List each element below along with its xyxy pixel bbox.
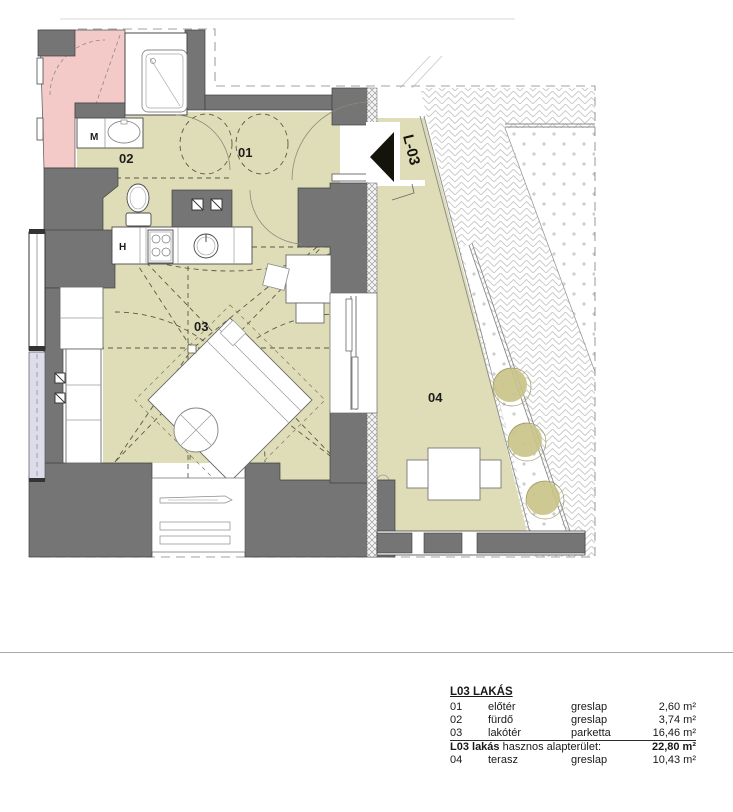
sheet-divider-line: [0, 652, 733, 653]
total-label-bold: L03 lakás: [450, 741, 500, 753]
glass-door: [330, 293, 377, 413]
room-number: 01: [450, 701, 488, 714]
schedule-row-04: 04 terasz greslap 10,43 m²: [450, 754, 696, 767]
wall-bottom-left: [29, 463, 152, 557]
schedule-row-03: 03 lakótér parketta 16,46 m²: [450, 727, 696, 741]
room-material: greslap: [571, 754, 650, 767]
washbasin: [77, 118, 143, 148]
round-table: [174, 408, 218, 452]
room-name: fürdő: [488, 714, 571, 727]
shower: [125, 33, 187, 115]
terrace-parapet: [377, 531, 585, 555]
schedule-title: L03 LAKÁS: [450, 686, 696, 699]
facade-window-lavender: [29, 352, 45, 482]
wall-top: [205, 95, 332, 110]
total-area: 22,80 m²: [601, 741, 696, 754]
room-area: 2,60 m²: [650, 701, 696, 714]
floor-plan-sheet: 01 02 03 04 M H L-03 L03 LAKÁS 01 előtér…: [0, 0, 733, 812]
kitchen-fixtures: [112, 227, 252, 264]
room-label-03: 03: [194, 319, 208, 334]
projection-origin-marker: [188, 345, 196, 353]
schedule-total-row: L03 lakás hasznos alapterület: 22,80 m²: [450, 741, 696, 754]
room-area: 3,74 m²: [650, 714, 696, 727]
appliance-label: H: [119, 242, 126, 253]
room-name: lakótér: [488, 727, 571, 740]
room-area: 10,43 m²: [650, 754, 696, 767]
room-material: parketta: [571, 727, 650, 740]
room-schedule: L03 LAKÁS 01 előtér greslap 2,60 m² 02 f…: [450, 686, 696, 767]
kitchen-sink: [194, 234, 218, 258]
room-material: greslap: [571, 714, 650, 727]
window-niche: [152, 478, 245, 552]
wall-left-kitchen: [44, 230, 115, 288]
wall-shower-column: [185, 30, 205, 110]
room-number: 04: [450, 754, 488, 767]
schedule-row-02: 02 fürdő greslap 3,74 m²: [450, 714, 696, 727]
floor-plan-drawing: 01 02 03 04 M H L-03: [0, 0, 733, 660]
wall-entry-block: [332, 88, 368, 125]
washbasin-label: M: [90, 132, 98, 143]
wall-bath-top: [75, 103, 125, 118]
room-number: 03: [450, 727, 488, 740]
terrace-chair-left: [407, 460, 428, 488]
stove: [148, 230, 173, 263]
room-name: előtér: [488, 701, 571, 714]
wall-right-lower: [330, 410, 368, 483]
room-number: 02: [450, 714, 488, 727]
room-material: greslap: [571, 701, 650, 714]
wardrobe-left: [60, 287, 103, 463]
room-name: terasz: [488, 754, 571, 767]
room-area: 16,46 m²: [650, 727, 696, 740]
toilet: [126, 184, 151, 226]
room-label-01: 01: [238, 145, 252, 160]
room-label-04: 04: [428, 390, 443, 405]
schedule-row-01: 01 előtér greslap 2,60 m²: [450, 701, 696, 714]
kitchen-counter: [112, 227, 252, 264]
room-label-02: 02: [119, 151, 133, 166]
total-label-rest: hasznos alapterület:: [503, 741, 601, 753]
terrace-table: [428, 448, 480, 500]
facade-window: [29, 229, 45, 351]
total-label: L03 lakás hasznos alapterület:: [450, 741, 601, 754]
wall-top-left-block: [38, 30, 75, 56]
terrace-chair-right: [480, 460, 501, 488]
